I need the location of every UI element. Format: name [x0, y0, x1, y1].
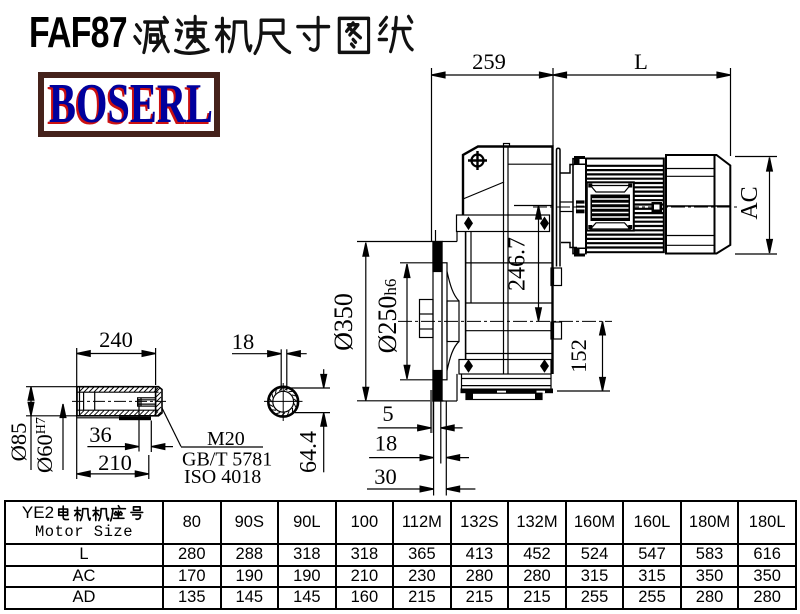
svg-text:AC: AC [737, 186, 763, 219]
svg-text:M20: M20 [207, 428, 245, 450]
svg-text:259: 259 [472, 49, 506, 74]
svg-text:Ø85: Ø85 [6, 423, 31, 462]
svg-text:30: 30 [374, 464, 397, 489]
svg-text:210: 210 [98, 450, 132, 475]
svg-text:5: 5 [382, 401, 393, 426]
svg-text:L: L [634, 49, 648, 74]
svg-text:18: 18 [375, 431, 398, 456]
svg-text:36: 36 [89, 422, 112, 447]
svg-text:152: 152 [566, 339, 591, 373]
svg-text:Ø60H7: Ø60H7 [32, 417, 57, 473]
svg-text:18: 18 [232, 329, 255, 354]
svg-text:246.7: 246.7 [505, 237, 531, 291]
svg-text:64.4: 64.4 [296, 431, 322, 473]
svg-text:ISO 4018: ISO 4018 [184, 466, 261, 488]
svg-text:Ø350: Ø350 [329, 293, 358, 351]
svg-text:240: 240 [99, 327, 133, 352]
svg-text:Ø250h6: Ø250h6 [373, 279, 402, 354]
